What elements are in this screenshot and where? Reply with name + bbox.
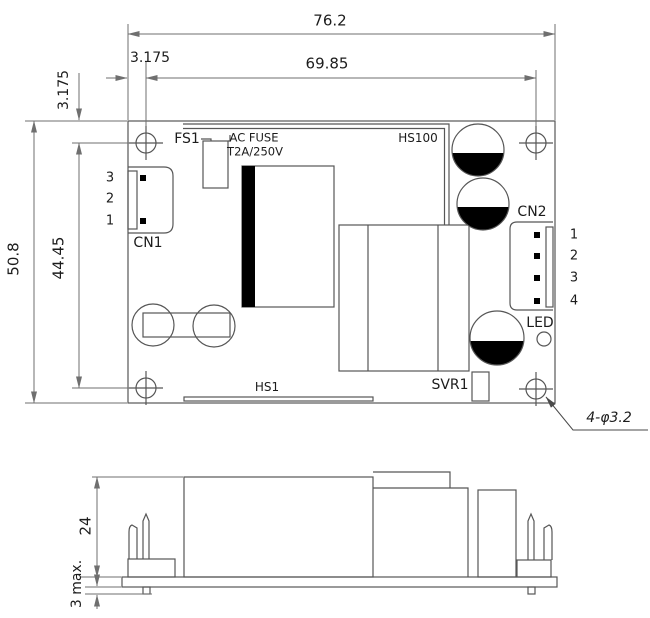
trimmer-svr1 xyxy=(472,372,489,401)
secondary-block-side xyxy=(478,490,516,577)
led-indicator xyxy=(537,332,551,346)
fuse-fs1 xyxy=(201,135,230,188)
dim-component-height: 24 xyxy=(79,516,94,535)
cn1-pin-label-1: 1 xyxy=(106,215,114,228)
pcb-side xyxy=(122,577,557,587)
cn2-pin-label-1: 1 xyxy=(570,229,578,242)
cn1-pin-label-2: 2 xyxy=(106,193,114,206)
capacitor-3 xyxy=(470,311,524,368)
fuse-ref-label: FS1 xyxy=(174,132,200,146)
cn2-pin-label-2: 2 xyxy=(570,250,578,263)
heatsink-side-outline xyxy=(373,472,468,577)
dim-total-height: 50.8 xyxy=(7,242,22,275)
dim-total-width: 76.2 xyxy=(313,14,346,29)
heatsink-hs100-label: HS100 xyxy=(398,132,438,144)
mounting-hole-bottom-left xyxy=(129,371,163,405)
cn2-pin-label-3: 3 xyxy=(570,272,578,285)
right-solder-pin xyxy=(528,587,535,594)
bottom-left-capacitors xyxy=(132,304,235,347)
connector-cn1-label: CN1 xyxy=(133,236,162,250)
cn2-pin1-pad xyxy=(534,232,540,238)
dim-hole-width: 69.85 xyxy=(306,57,349,72)
fuse-rating-label: T2A/250V xyxy=(227,146,283,158)
center-block xyxy=(339,225,469,371)
dim-pin-protrusion: 3 max. xyxy=(70,560,84,608)
transformer-side xyxy=(184,477,373,577)
top-view xyxy=(128,121,555,406)
transformer-top xyxy=(242,166,334,307)
dim-hole-height: 44.45 xyxy=(52,237,67,280)
side-view xyxy=(122,472,557,594)
mechanical-drawing-page: 76.2 3.175 69.85 3.175 50.8 44.45 4-φ3.2… xyxy=(0,0,650,618)
mounting-hole-top-left xyxy=(129,126,163,160)
heatsink-hs1-bar xyxy=(184,397,373,401)
capacitor-1 xyxy=(452,124,504,179)
cn2-pin2-pad xyxy=(534,253,540,259)
cn1-pin-label-3: 3 xyxy=(106,172,114,185)
mounting-hole-top-right xyxy=(519,126,553,160)
cn2-pin4-pad xyxy=(534,298,540,304)
connector-cn1-side xyxy=(128,514,175,577)
connector-cn2-label: CN2 xyxy=(517,205,546,219)
connector-cn1 xyxy=(128,167,173,233)
cn1-pin3-pad xyxy=(140,175,146,181)
dim-edge-offset-y: 3.175 xyxy=(57,70,71,110)
hole-spec-label: 4-φ3.2 xyxy=(586,411,631,425)
side-view-dimensions xyxy=(80,477,183,609)
trimmer-svr1-label: SVR1 xyxy=(431,378,468,392)
led-label: LED xyxy=(526,316,553,330)
mechanical-drawing-canvas xyxy=(0,0,650,618)
connector-cn2-side xyxy=(517,514,552,577)
mounting-hole-bottom-right xyxy=(519,372,553,406)
fuse-type-label: AC FUSE xyxy=(230,132,279,144)
cn2-pin3-pad xyxy=(534,275,540,281)
heatsink-hs1-label: HS1 xyxy=(255,381,279,393)
left-solder-pin xyxy=(143,587,150,594)
dim-edge-offset-x: 3.175 xyxy=(130,51,170,65)
cn1-pin1-pad xyxy=(140,218,146,224)
connector-cn2 xyxy=(510,222,553,310)
cn2-pin-label-4: 4 xyxy=(570,295,578,308)
